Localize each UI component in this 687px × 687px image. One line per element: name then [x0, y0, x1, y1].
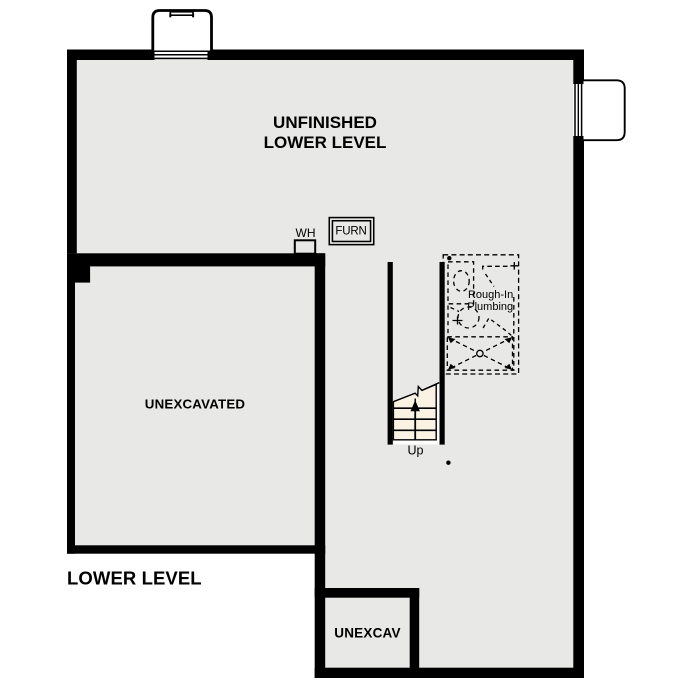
svg-text:WH: WH — [296, 226, 316, 240]
svg-text:UNEXCAVATED: UNEXCAVATED — [145, 397, 246, 412]
svg-text:FURN: FURN — [335, 226, 366, 238]
svg-text:LOWER LEVEL: LOWER LEVEL — [264, 133, 387, 152]
svg-text:UNFINISHED: UNFINISHED — [273, 113, 377, 132]
svg-text:UNEXCAV: UNEXCAV — [334, 626, 400, 641]
svg-text:Plumbing: Plumbing — [467, 301, 513, 313]
svg-text:Up: Up — [408, 444, 424, 458]
svg-text:LOWER LEVEL: LOWER LEVEL — [67, 568, 202, 589]
svg-text:Rough-In: Rough-In — [468, 289, 513, 301]
